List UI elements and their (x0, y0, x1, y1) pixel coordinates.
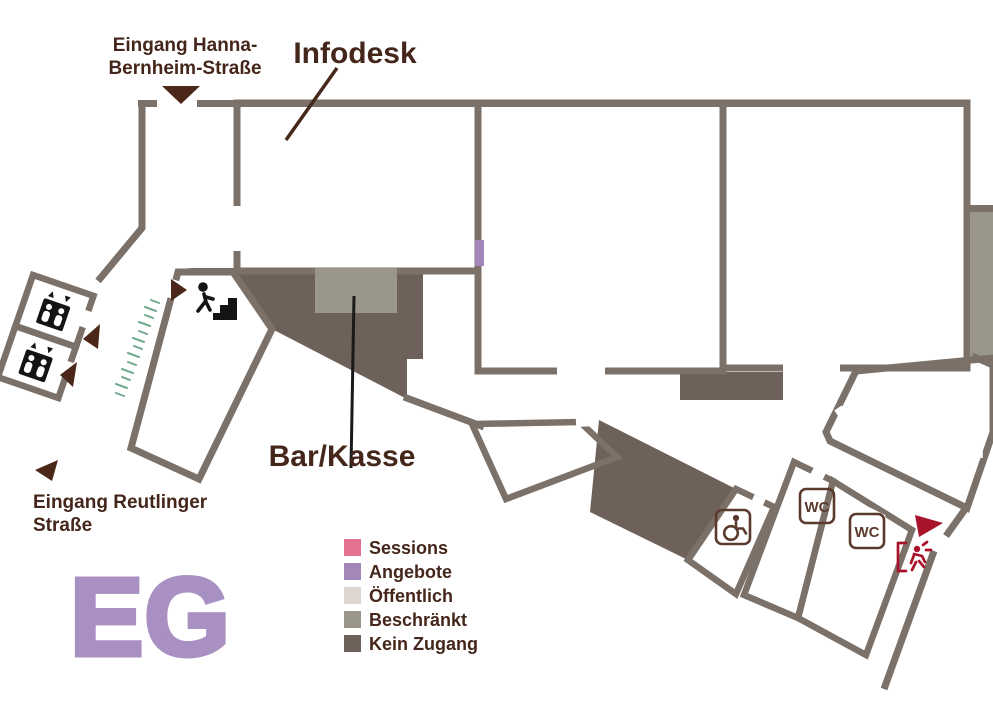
room-label-buehne1: Bühne 1 (792, 177, 899, 207)
no-access-block (680, 372, 783, 400)
elevator-icon (36, 289, 74, 331)
bar-kasse-label: Bar/Kasse (269, 440, 416, 473)
restricted-sliver (970, 212, 993, 362)
wc-label: WC (855, 524, 880, 541)
floor-badge: EG (70, 556, 231, 679)
elevator-icon (18, 340, 56, 382)
legend-label-beschraenkt: Beschränkt (369, 610, 467, 630)
floorplan-svg: WC WC Foyer Hackspace Bühne 1 Küche Elfe… (0, 0, 993, 702)
entrance-arrow-icon (35, 460, 58, 481)
wc-label: WC (805, 499, 830, 516)
stairs-corridor (131, 272, 272, 479)
legend-label-oeffentlich: Öffentlich (369, 586, 453, 606)
entrance-hanna-line2: Bernheim-Straße (108, 58, 261, 79)
elf-icon (908, 382, 946, 428)
legend-label-sessions: Sessions (369, 538, 448, 558)
legend-label-kein-zugang: Kein Zugang (369, 634, 478, 654)
legend: Sessions Angebote Öffentlich Beschränkt … (344, 538, 478, 654)
bar-kasse-block (315, 268, 397, 313)
room-label-kueche: Küche (507, 439, 584, 467)
hedge-decoration (116, 300, 159, 396)
legend-swatch-kein-zugang (344, 635, 361, 652)
room-label-elfenhain: Elfenhain (872, 436, 985, 464)
legend-swatch-sessions (344, 539, 361, 556)
legend-swatch-oeffentlich (344, 587, 361, 604)
room-label-foyer: Foyer (320, 177, 394, 207)
room-buehne1 (723, 103, 967, 368)
room-hackspace (478, 103, 723, 371)
entrance-hanna-line1: Eingang Hanna- (113, 35, 258, 56)
entrance-reutlinger-line1: Eingang Reutlinger (33, 492, 208, 513)
room-elfenhain (826, 358, 993, 508)
no-access-band (590, 420, 736, 560)
entrance-reutlinger-line2: Straße (33, 515, 92, 536)
legend-swatch-beschraenkt (344, 611, 361, 628)
infodesk-label: Infodesk (293, 37, 417, 70)
floorplan-page: WC WC Foyer Hackspace Bühne 1 Küche Elfe… (0, 0, 993, 702)
stairs-up-icon (198, 282, 237, 320)
legend-label-angebote: Angebote (369, 562, 452, 582)
exit-arrow-icon (915, 515, 943, 537)
elevator-block (0, 275, 94, 398)
room-label-hackspace: Hackspace (529, 177, 670, 207)
legend-swatch-angebote (344, 563, 361, 580)
